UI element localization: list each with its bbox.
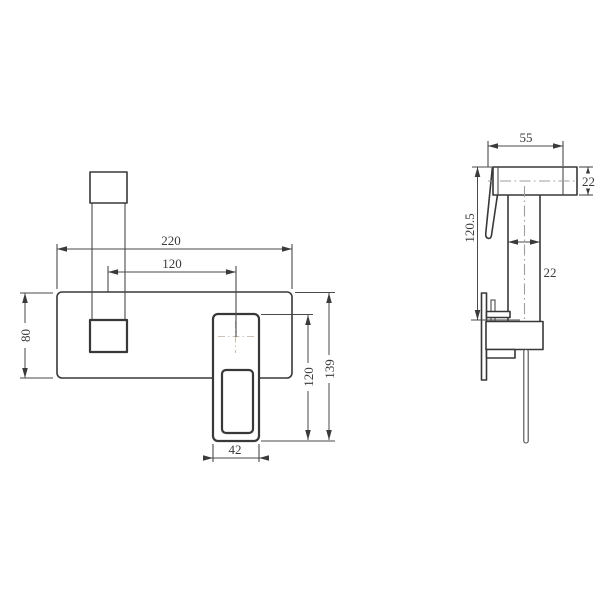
faucet-technical-drawing: 220 120 — [0, 0, 600, 600]
dim-overall-depth-label: 120.5 — [462, 213, 477, 242]
mounting-bracket-upper — [487, 312, 511, 318]
dim-total-height-label: 139 — [322, 359, 337, 379]
dim-body-width-label: 22 — [544, 265, 557, 280]
dim-spout-height-label: 120 — [301, 367, 316, 387]
dim-plate-width-label: 220 — [161, 233, 181, 248]
dim-head-length-label: 55 — [520, 130, 533, 145]
technical-drawing-canvas: 220 120 — [0, 0, 600, 600]
handle-base-escutcheon — [90, 320, 127, 352]
valve-body — [486, 322, 543, 350]
mounting-bracket-lower — [487, 350, 516, 359]
dim-head-height-label: 22 — [582, 174, 595, 189]
dim-plate-height-label: 80 — [18, 329, 33, 342]
dim-handle-to-spout-label: 120 — [162, 256, 182, 271]
spout-blade-side — [524, 350, 528, 444]
handle-cap — [90, 172, 127, 203]
dim-spout-width-label: 42 — [229, 442, 242, 457]
